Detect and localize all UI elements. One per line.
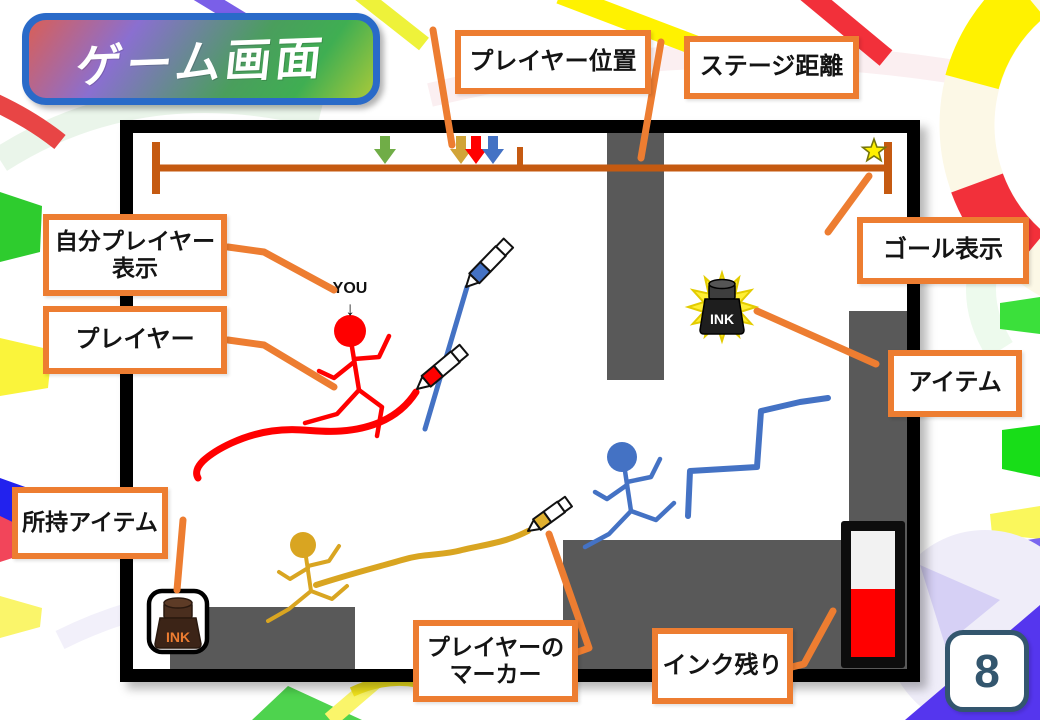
connector-held-item — [177, 520, 183, 590]
slide: YOU ↓ INK — [0, 0, 1040, 720]
callout-player-position: プレイヤー位置 — [455, 30, 651, 94]
connector-player-position — [433, 30, 452, 145]
connector-item — [757, 311, 876, 364]
callout-stage-distance: ステージ距離 — [684, 36, 859, 99]
connector-ink-remaining — [792, 611, 833, 667]
callout-item: アイテム — [888, 350, 1022, 417]
page-number: 8 — [974, 644, 1000, 698]
callout-ink-remaining: インク残り — [652, 628, 793, 704]
callout-player-marker: プレイヤーの マーカー — [413, 620, 578, 702]
callout-held-item: 所持アイテム — [12, 487, 168, 559]
callout-player: プレイヤー — [43, 306, 227, 374]
page-number-box: 8 — [945, 630, 1029, 712]
connector-player — [228, 340, 334, 387]
connector-self-player — [228, 247, 334, 290]
slide-title: ゲーム画面 — [73, 22, 330, 97]
callout-goal-display: ゴール表示 — [857, 217, 1029, 284]
callout-self-player-display: 自分プレイヤー 表示 — [43, 214, 227, 296]
slide-title-box: ゲーム画面 — [22, 13, 380, 105]
